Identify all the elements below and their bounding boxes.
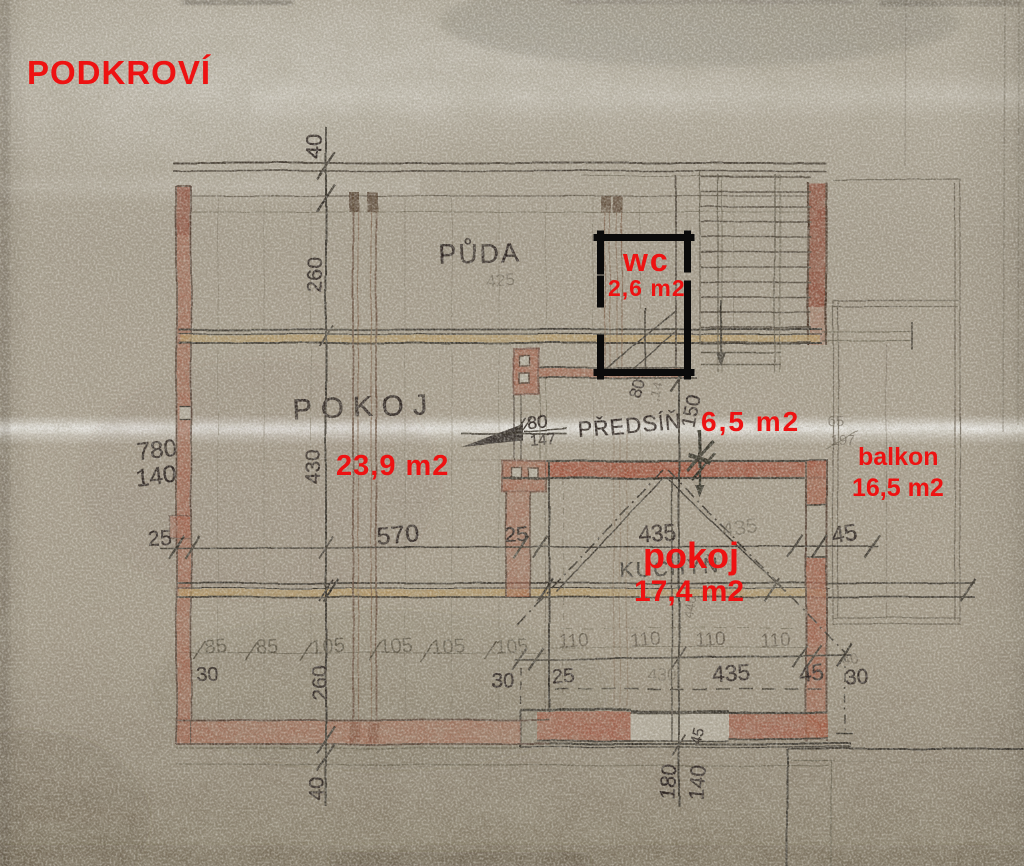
svg-text:PODKROVÍ: PODKROVÍ [27,54,211,91]
svg-text:23,9 m2: 23,9 m2 [336,450,449,482]
svg-text:wc: wc [622,242,670,278]
svg-text:balkon: balkon [858,443,939,471]
svg-text:6,5 m2: 6,5 m2 [701,406,800,437]
svg-text:17,4 m2: 17,4 m2 [634,575,744,608]
svg-text:16,5 m2: 16,5 m2 [852,474,944,502]
svg-text:pokoj: pokoj [643,535,739,576]
svg-text:2,6 m2: 2,6 m2 [608,275,686,301]
